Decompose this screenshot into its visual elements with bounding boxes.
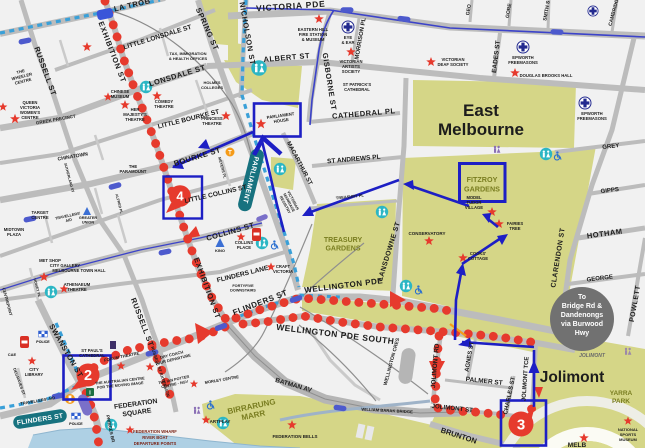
svg-text:VILLAGE: VILLAGE xyxy=(465,205,483,210)
svg-text:YARRA: YARRA xyxy=(610,390,633,397)
svg-text:KINO: KINO xyxy=(215,248,225,253)
svg-text:CENTRE: CENTRE xyxy=(21,115,38,120)
svg-text:T: T xyxy=(228,151,232,157)
svg-text:4: 4 xyxy=(176,189,184,204)
svg-text:DOWNSTAIRS: DOWNSTAIRS xyxy=(230,289,256,293)
svg-text:PARK: PARK xyxy=(612,398,630,405)
svg-text:ARTPLAY: ARTPLAY xyxy=(210,419,231,424)
svg-text:THEATRE: THEATRE xyxy=(125,117,145,122)
svg-text:FITZROY: FITZROY xyxy=(467,175,498,184)
svg-text:via Burwood: via Burwood xyxy=(561,321,603,328)
svg-text:MELBOURNE TOWN HALL: MELBOURNE TOWN HALL xyxy=(52,268,106,273)
svg-text:LIBRARY: LIBRARY xyxy=(25,372,44,377)
svg-text:TREASURY: TREASURY xyxy=(324,237,363,244)
svg-text:JOLIMONT: JOLIMONT xyxy=(579,353,606,359)
svg-text:MUSEUM: MUSEUM xyxy=(619,437,637,442)
svg-text:CAE: CAE xyxy=(8,352,17,357)
svg-text:FORTYFIVE: FORTYFIVE xyxy=(232,284,254,288)
svg-text:VICTORIA: VICTORIA xyxy=(273,269,293,274)
svg-text:POLICE: POLICE xyxy=(69,422,83,426)
svg-text:DEAF SOCIETY: DEAF SOCIETY xyxy=(438,62,469,67)
svg-text:3: 3 xyxy=(517,417,525,434)
svg-text:THEATRE: THEATRE xyxy=(67,287,87,292)
svg-text:RIVER BOAT: RIVER BOAT xyxy=(142,435,168,440)
svg-text:To: To xyxy=(578,294,586,301)
svg-text:CATHEDRAL: CATHEDRAL xyxy=(344,87,370,92)
svg-text:East: East xyxy=(463,101,499,120)
svg-text:Melbourne: Melbourne xyxy=(438,120,524,139)
svg-text:Dandenongs: Dandenongs xyxy=(561,312,603,319)
svg-text:CENTRE: CENTRE xyxy=(31,215,48,220)
svg-text:& MUSEUM: & MUSEUM xyxy=(302,37,325,42)
svg-text:GARDENS: GARDENS xyxy=(464,185,500,194)
svg-text:Bridge Rd &: Bridge Rd & xyxy=(562,303,602,310)
svg-text:COLLEGES: COLLEGES xyxy=(201,85,223,90)
svg-text:DEPARTURE POINTS: DEPARTURE POINTS xyxy=(134,441,177,446)
svg-text:PARAMOUNT: PARAMOUNT xyxy=(120,169,147,174)
svg-text:CATHEDRAL: CATHEDRAL xyxy=(79,353,105,358)
svg-text:2: 2 xyxy=(84,368,92,384)
svg-text:COTTAGE: COTTAGE xyxy=(468,256,488,261)
svg-text:FEDERATION WHARF: FEDERATION WHARF xyxy=(133,429,177,434)
svg-text:GARDENS: GARDENS xyxy=(325,246,360,253)
svg-text:& EAR: & EAR xyxy=(341,40,354,45)
svg-text:DOUGLAS BROOKS HALL: DOUGLAS BROOKS HALL xyxy=(520,73,573,78)
svg-text:Hwy: Hwy xyxy=(575,330,590,337)
svg-text:MUSEUM: MUSEUM xyxy=(111,94,130,99)
svg-text:Jolimont: Jolimont xyxy=(540,369,605,386)
svg-text:UNION: UNION xyxy=(82,221,94,225)
svg-text:& HEALTH OFFICES: & HEALTH OFFICES xyxy=(169,56,208,61)
svg-text:SOCIETY: SOCIETY xyxy=(342,69,361,74)
svg-text:FREEMASONS: FREEMASONS xyxy=(577,116,607,121)
svg-text:TREE: TREE xyxy=(509,226,520,231)
svg-text:FREEMASONS: FREEMASONS xyxy=(508,60,538,65)
svg-text:MELB: MELB xyxy=(568,442,587,448)
svg-text:PLACE: PLACE xyxy=(237,245,251,250)
svg-text:FEDERATION BELLS: FEDERATION BELLS xyxy=(273,434,318,439)
svg-text:GREATER: GREATER xyxy=(79,216,98,220)
svg-text:PLAZA: PLAZA xyxy=(7,232,21,237)
svg-text:THEATRE: THEATRE xyxy=(202,121,222,126)
svg-text:POLICE: POLICE xyxy=(36,340,50,344)
svg-text:CONSERVATORY: CONSERVATORY xyxy=(408,231,445,236)
svg-text:THEATRE: THEATRE xyxy=(154,104,174,109)
